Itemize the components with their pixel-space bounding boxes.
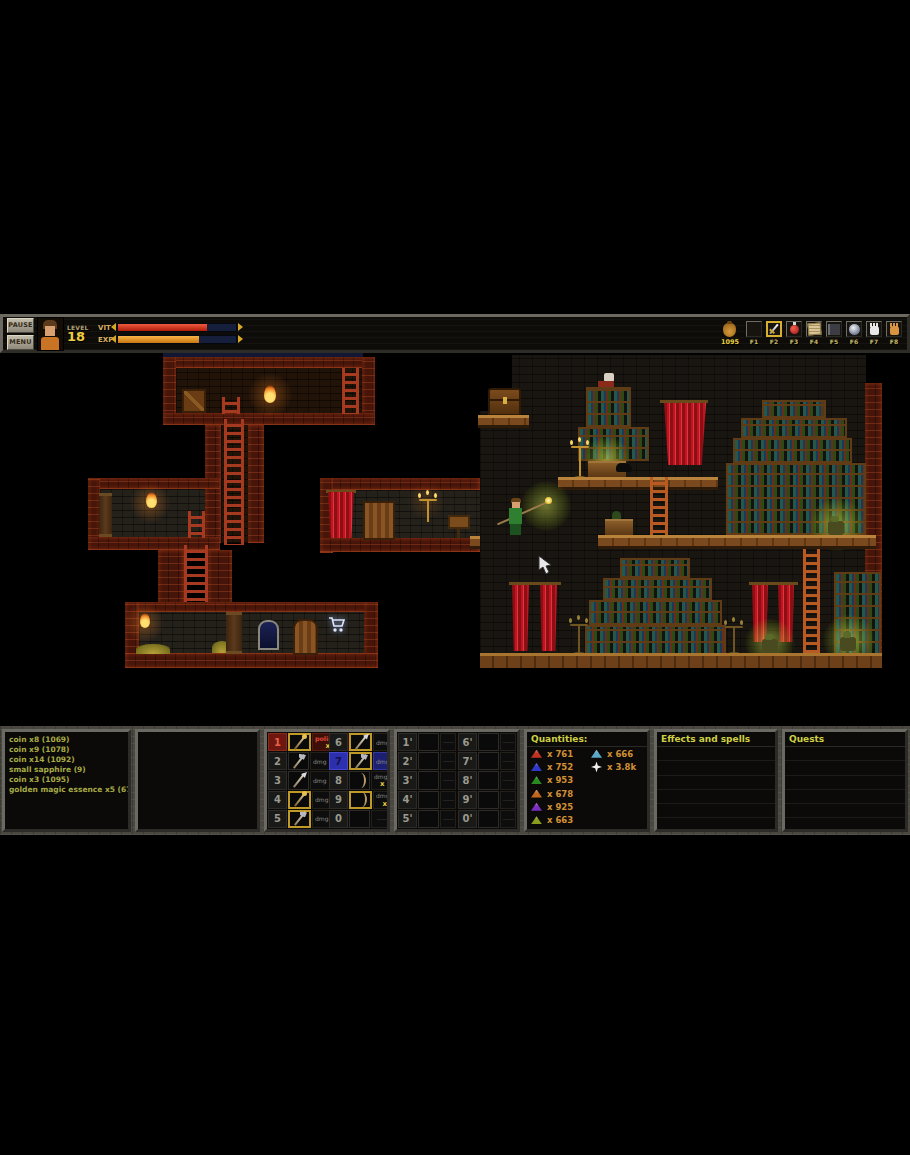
fkey-f1-button[interactable]: F1 — [745, 321, 763, 345]
quantity-row: x 663 — [527, 813, 647, 826]
fkey-f2-button[interactable]: F2 — [765, 321, 783, 345]
bottom-panels: coin x8 (1069) coin x9 (1078) coin x14 (… — [0, 726, 910, 835]
wooden-door[interactable] — [293, 619, 318, 655]
pause-button[interactable]: PAUSE — [7, 318, 34, 333]
log-line: small sapphire (9) — [9, 765, 124, 775]
bookshelf — [762, 400, 826, 418]
bow-icon[interactable] — [349, 791, 372, 809]
hotbar2-key[interactable]: 8' — [458, 771, 477, 789]
scroll-icon — [807, 322, 821, 335]
curtain-rail — [660, 400, 708, 403]
candelabra — [570, 439, 590, 479]
hotbar-stats: dmg150 x 675 — [373, 791, 390, 809]
library-floor — [480, 653, 882, 668]
ladder — [222, 397, 240, 414]
mouse-cursor — [538, 555, 554, 575]
money-bag-icon — [723, 323, 736, 337]
wooden-platform — [598, 535, 876, 549]
hotbar2-slot: 6' — [458, 733, 516, 751]
fkey-f5-button[interactable]: F5 — [825, 321, 843, 345]
axe-icon[interactable] — [349, 752, 372, 770]
quests-panel: Quests — [782, 729, 908, 832]
pillar — [226, 612, 242, 654]
wooden-platform — [558, 477, 718, 490]
quest-row — [785, 761, 905, 775]
empty-panel — [135, 729, 260, 832]
hotbar2-slot: 3' — [398, 771, 456, 789]
dungeon-ceiling — [320, 478, 480, 490]
fkey-f3-button[interactable]: F3 — [785, 321, 803, 345]
empty-slot[interactable] — [418, 733, 439, 751]
hotbar2-slot: 5' — [398, 810, 456, 828]
torch — [146, 492, 157, 508]
hotbar-key-2[interactable]: 2 — [268, 752, 287, 770]
axe-icon[interactable] — [288, 810, 311, 828]
hotbar2-key[interactable]: 4' — [398, 791, 417, 809]
hotbar-key-8[interactable]: 8 — [329, 771, 348, 789]
log-line: golden magic essence x5 (678) — [9, 785, 124, 795]
hotbar2-key[interactable]: 3' — [398, 771, 417, 789]
empty-slot[interactable] — [478, 791, 499, 809]
hotbar2-slot: 7' — [458, 752, 516, 770]
goblin[interactable] — [828, 521, 844, 535]
empty-slot[interactable] — [418, 752, 439, 770]
gold-amount: 1095 — [721, 338, 739, 346]
empty-slot[interactable] — [349, 810, 370, 828]
quest-row — [785, 747, 905, 761]
cyan-gem-icon — [591, 750, 602, 758]
goblin[interactable] — [840, 637, 856, 651]
blue-gem-icon — [531, 763, 542, 771]
orange-hand-icon — [890, 326, 899, 335]
log-line: coin x3 (1095) — [9, 775, 124, 785]
quest-row — [785, 790, 905, 804]
exp-bar — [117, 335, 237, 344]
effects-row — [657, 790, 775, 804]
fkey-f7-button[interactable]: F7 — [865, 321, 883, 345]
ladder — [650, 477, 668, 537]
torch — [264, 385, 276, 403]
hotbar2-slot: 4' — [398, 791, 456, 809]
hotbar2-key[interactable]: 0' — [458, 810, 477, 828]
green-gem-icon — [531, 776, 542, 784]
hotbar-key-9[interactable]: 9 — [329, 791, 348, 809]
quest-row — [785, 804, 905, 818]
shaft-wall — [158, 550, 184, 606]
effects-row — [657, 761, 775, 775]
hotbar-slot-7: 7 dmg260 — [329, 752, 390, 770]
shaft-wall — [248, 425, 264, 543]
quantity-row: x 925 — [527, 800, 647, 813]
log-line: coin x14 (1092) — [9, 755, 124, 765]
candelabra-lamp — [724, 619, 744, 655]
wooden-sign — [448, 515, 470, 529]
hotbar-key-0[interactable]: 0 — [329, 810, 348, 828]
spear-icon[interactable] — [288, 771, 309, 789]
weapon-hotbar-panel: 1 polimorf! x 8 2 dmg45 — [264, 729, 390, 832]
white-hand-icon — [870, 326, 879, 335]
hotbar-stats-empty — [371, 810, 390, 828]
dungeon-ceiling — [125, 602, 378, 612]
orb-icon — [848, 323, 861, 336]
staff-icon[interactable] — [288, 733, 311, 751]
hotbar2-slot: 8' — [458, 771, 516, 789]
goblin[interactable] — [762, 639, 778, 653]
hotbar-key-5[interactable]: 5 — [268, 810, 287, 828]
effects-panel: Effects and spells — [654, 729, 778, 832]
wooden-door[interactable] — [363, 501, 395, 540]
star-gem-icon — [591, 761, 602, 772]
red-curtain — [664, 403, 706, 465]
empty-slot[interactable] — [478, 752, 499, 770]
hotbar-slot-6: 6 dmg160 — [329, 733, 390, 751]
bookshelf — [585, 625, 726, 655]
hotbar2-slot: 1' — [398, 733, 456, 751]
bookshelf — [586, 387, 631, 427]
pedestal-table — [605, 519, 633, 535]
empty-slot[interactable] — [478, 810, 499, 828]
quest-row — [785, 776, 905, 790]
purple-gem-icon — [531, 803, 542, 811]
ladder — [342, 368, 359, 414]
hotbar-stats: dmg160 — [373, 733, 390, 751]
pillar — [99, 493, 112, 537]
hotbar2-slot: 2' — [398, 752, 456, 770]
cat — [616, 463, 632, 472]
fkey-f4-button[interactable]: F4 — [805, 321, 823, 345]
fkey-f8-button[interactable]: F8 — [885, 321, 903, 345]
candelabra — [418, 492, 438, 522]
shop-cart-icon[interactable] — [328, 616, 347, 634]
hud-left: PAUSE MENU LEVEL 18 VIT EXP — [7, 317, 237, 351]
hotbar2-key[interactable]: 5' — [398, 810, 417, 828]
shaft-wall — [208, 550, 232, 606]
hotbar2-slot: 9' — [458, 791, 516, 809]
level-value: 18 — [67, 331, 85, 343]
menu-button[interactable]: MENU — [7, 335, 34, 350]
gold-counter: 1095 — [721, 323, 739, 346]
fkey-f6-button[interactable]: F6 — [845, 321, 863, 345]
bookshelf — [589, 600, 722, 625]
bookshelf — [603, 578, 712, 600]
hotbar-key-3[interactable]: 3 — [268, 771, 287, 789]
empty-slot[interactable] — [418, 791, 439, 809]
quantity-row: x 953 — [527, 774, 647, 787]
curtain-rail — [749, 582, 798, 585]
hotbar-key-7[interactable]: 7 — [329, 752, 348, 770]
quests-title: Quests — [785, 732, 905, 747]
hotbar-key-1[interactable]: 1 — [268, 733, 287, 751]
empty-slot-icon — [746, 321, 762, 337]
dungeon-floor — [320, 538, 480, 552]
red-curtain — [512, 585, 529, 651]
quantities-panel: Quantities: x 761 x 666 x 752 x 3.8k x 9… — [524, 729, 650, 832]
candelabra-lamp — [569, 617, 589, 655]
plant — [136, 644, 170, 654]
dungeon-ceiling — [163, 357, 375, 368]
hud-bar: PAUSE MENU LEVEL 18 VIT EXP — [0, 314, 910, 353]
log-line: coin x8 (1069) — [9, 735, 124, 745]
bookshelf — [741, 418, 847, 438]
bow-icon[interactable] — [349, 771, 370, 789]
hotbar-slot-9: 9 dmg150 x 675 — [329, 791, 390, 809]
quest-row — [785, 818, 905, 832]
game-window: PAUSE MENU LEVEL 18 VIT EXP — [0, 0, 910, 1155]
crate — [182, 389, 206, 413]
ladder — [224, 419, 244, 545]
hotbar2-key[interactable]: 6' — [458, 733, 477, 751]
hotbar-key-6[interactable]: 6 — [329, 733, 348, 751]
loot-log-panel: coin x8 (1069) coin x9 (1078) coin x14 (… — [2, 729, 131, 832]
wooden-platform — [478, 415, 529, 428]
quantity-row: x 752 x 3.8k — [527, 760, 647, 773]
spear-light — [545, 497, 552, 504]
dungeon-floor — [125, 653, 378, 668]
book-icon — [828, 324, 840, 335]
hotbar2-key[interactable]: 7' — [458, 752, 477, 770]
torch — [140, 613, 150, 628]
arched-window — [258, 620, 279, 650]
game-viewport[interactable] — [0, 353, 910, 726]
hotbar-slot-8: 8 dmg70 x 4.4k — [329, 771, 390, 789]
quantity-row: x 678 — [527, 787, 647, 800]
red-gem-icon — [531, 750, 542, 758]
staff-icon[interactable] — [288, 791, 311, 809]
effects-row — [657, 747, 775, 761]
effects-row — [657, 818, 775, 832]
hud-right: 1095 F1 F2 F3 F4 F5 — [721, 321, 903, 346]
secondary-hotbar-panel: 1' 2' 3' 4' — [394, 729, 520, 832]
hotbar-stats: dmg70 x 4.4k — [371, 771, 390, 789]
spear-icon[interactable] — [349, 733, 372, 751]
portrait-torso — [41, 337, 59, 350]
bookshelf — [620, 558, 690, 578]
portrait-face — [45, 326, 55, 336]
potion-icon — [790, 325, 799, 334]
hotbar-key-4[interactable]: 4 — [268, 791, 287, 809]
empty-slot[interactable] — [418, 771, 439, 789]
void — [866, 353, 910, 383]
hotbar2-key[interactable]: 2' — [398, 752, 417, 770]
orange-gem-icon — [531, 790, 542, 798]
vit-bar — [117, 323, 237, 332]
hotbar2-key[interactable]: 1' — [398, 733, 417, 751]
sword-icon — [769, 324, 778, 334]
hotbar-slot-0: 0 — [329, 810, 390, 828]
empty-slot[interactable] — [478, 733, 499, 751]
ladder — [803, 549, 820, 657]
sign-post — [457, 529, 460, 538]
quantity-row: x 761 x 666 — [527, 747, 647, 760]
axe-icon[interactable] — [288, 752, 309, 770]
quantities-title: Quantities: — [527, 732, 647, 747]
player-character[interactable] — [503, 496, 533, 540]
lime-gem-icon — [531, 816, 542, 824]
hotbar2-key[interactable]: 9' — [458, 791, 477, 809]
red-curtain — [328, 492, 354, 538]
red-curtain — [540, 585, 557, 651]
ladder — [188, 511, 205, 538]
character-portrait — [37, 317, 64, 351]
hotbar-stats: dmg260 — [373, 752, 390, 770]
log-line: coin x9 (1078) — [9, 745, 124, 755]
effects-row — [657, 776, 775, 790]
effects-title: Effects and spells — [657, 732, 775, 747]
empty-slot[interactable] — [478, 771, 499, 789]
effects-row — [657, 804, 775, 818]
curtain-rail — [509, 582, 561, 585]
treasure-chest[interactable] — [488, 388, 521, 416]
bookshelf — [733, 438, 852, 463]
hotbar2-slot: 0' — [458, 810, 516, 828]
empty-slot[interactable] — [418, 810, 439, 828]
